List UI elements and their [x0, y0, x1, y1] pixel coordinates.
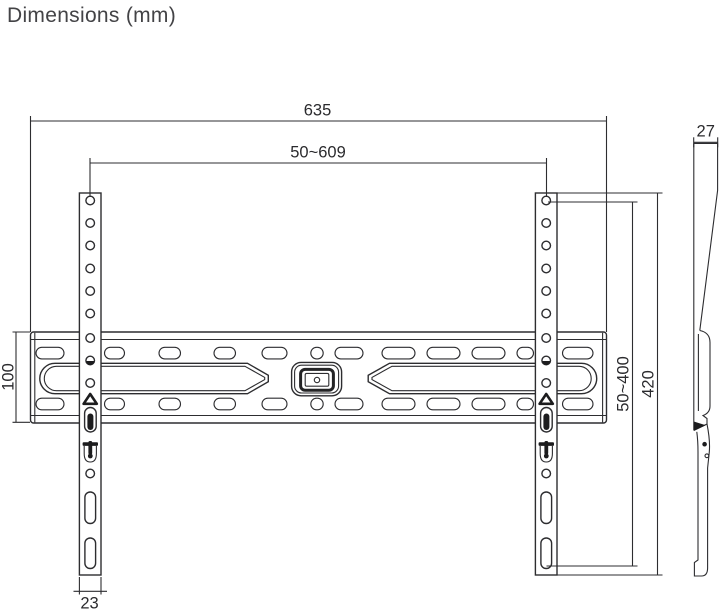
page-title: Dimensions (mm): [7, 4, 176, 27]
dim-plate-height: 100: [0, 332, 30, 422]
profile-hook: [694, 331, 710, 431]
profile-top-taper: [694, 143, 718, 330]
dim-total-width: 635: [31, 102, 607, 333]
dim-label-profile-depth: 27: [697, 123, 715, 141]
dim-rail-width: 23: [74, 577, 108, 613]
center-fixture: [292, 362, 342, 395]
dim-label-mount-height: 50~400: [615, 356, 633, 412]
profile-screw-hole: [705, 454, 709, 458]
dim-label-total-width: 635: [304, 102, 332, 120]
dim-label-total-height: 420: [640, 370, 658, 398]
dimension-diagram: Dimensions (mm): [0, 0, 720, 613]
profile-hook-shadow: [694, 422, 706, 431]
right-rail: [535, 193, 557, 575]
side-profile-view: [694, 143, 718, 576]
dim-label-plate-height: 100: [0, 363, 18, 391]
wall-plate: [31, 332, 607, 423]
profile-screw-dot: [702, 442, 707, 447]
dim-label-mount-width: 50~609: [290, 144, 346, 162]
dim-label-rail-width: 23: [80, 595, 98, 613]
profile-lower-blade: [694, 424, 709, 576]
left-rail: [79, 193, 101, 575]
dim-mount-width: 50~609: [90, 144, 547, 198]
